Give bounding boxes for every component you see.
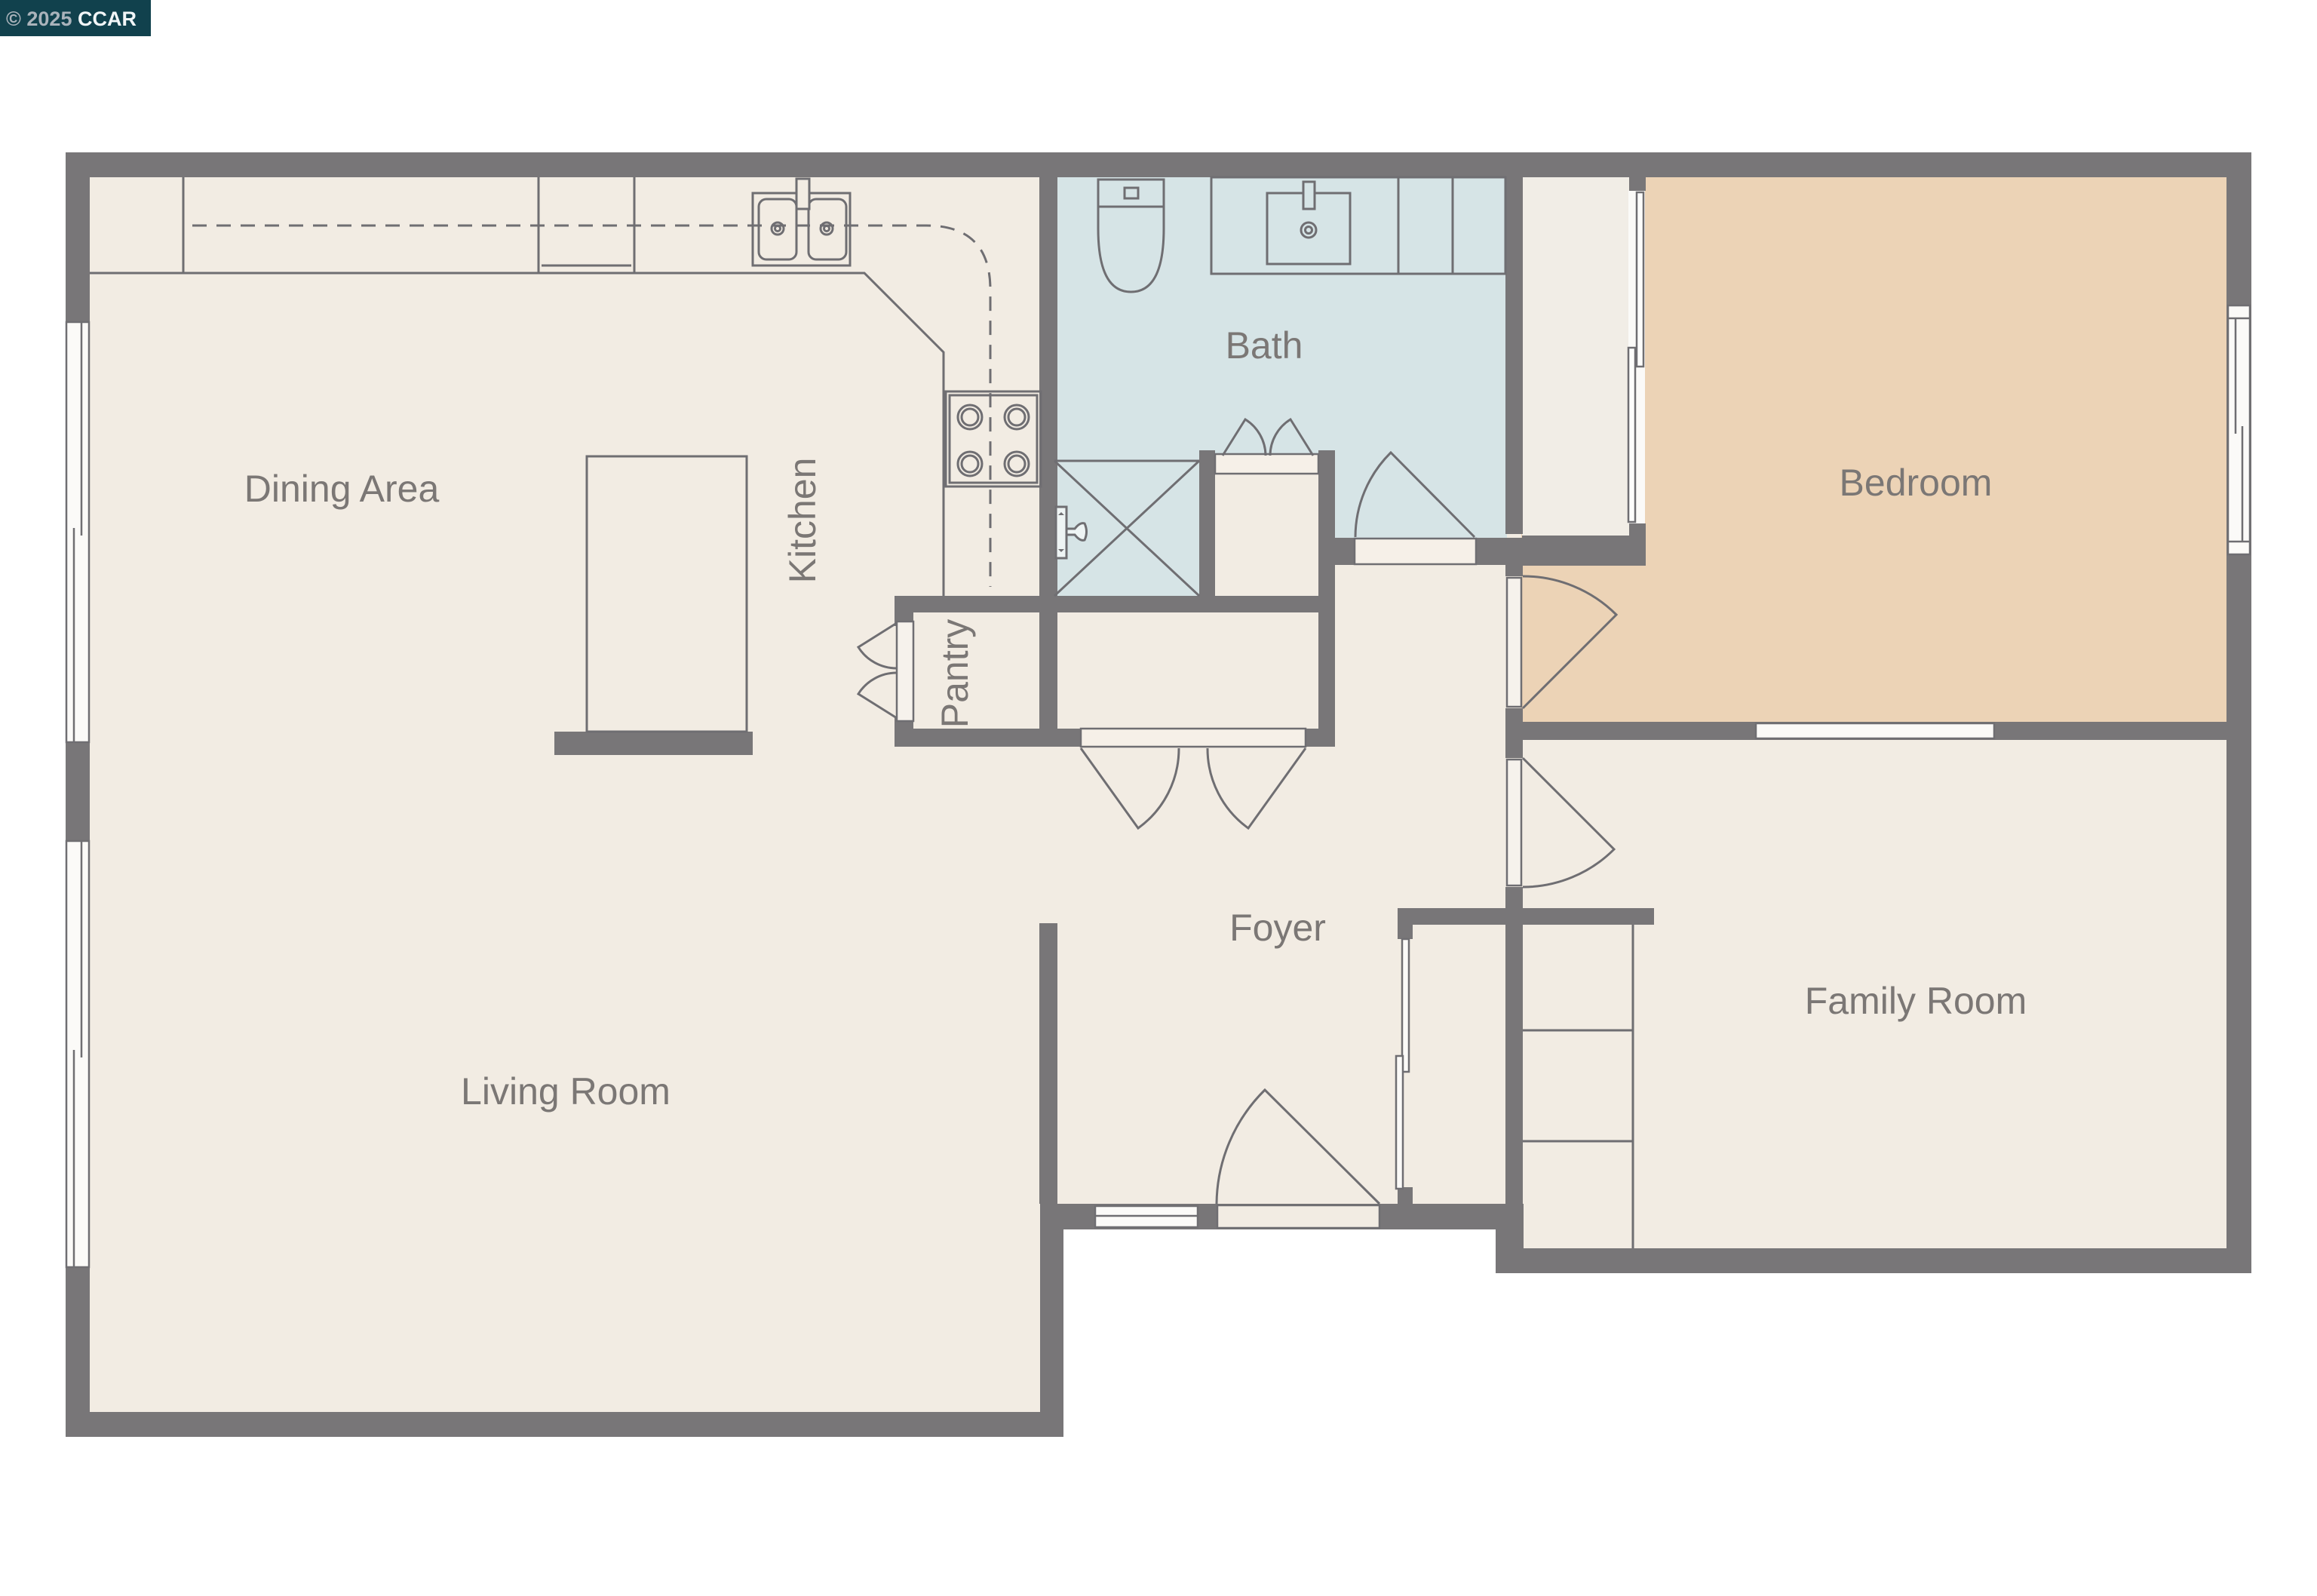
svg-text:Kitchen: Kitchen: [781, 458, 824, 584]
svg-text:Family Room: Family Room: [1805, 980, 2027, 1022]
svg-text:Bedroom: Bedroom: [1840, 462, 1993, 504]
svg-text:Pantry: Pantry: [934, 619, 976, 729]
svg-text:Bath: Bath: [1226, 324, 1303, 367]
svg-text:© 2025 CCAR: © 2025 CCAR: [6, 8, 137, 30]
svg-text:Dining Area: Dining Area: [244, 468, 440, 510]
svg-text:Foyer: Foyer: [1229, 907, 1326, 949]
svg-text:Living Room: Living Room: [461, 1070, 671, 1113]
